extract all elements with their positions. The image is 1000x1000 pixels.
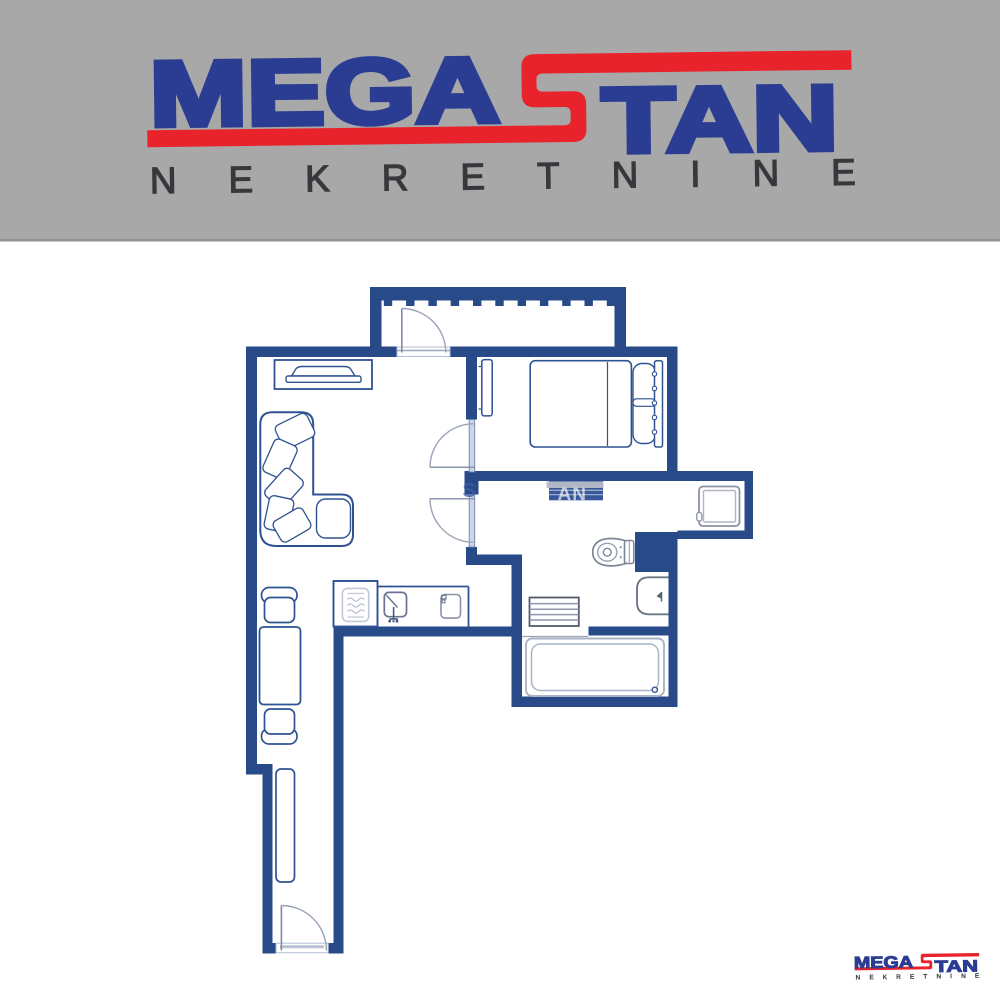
- svg-text:NEKRETNINE: NEKRETNINE: [856, 973, 980, 982]
- svg-text:S: S: [463, 480, 476, 502]
- svg-text:MEGA: MEGA: [149, 40, 500, 146]
- svg-text:MEGA: MEGA: [854, 953, 914, 972]
